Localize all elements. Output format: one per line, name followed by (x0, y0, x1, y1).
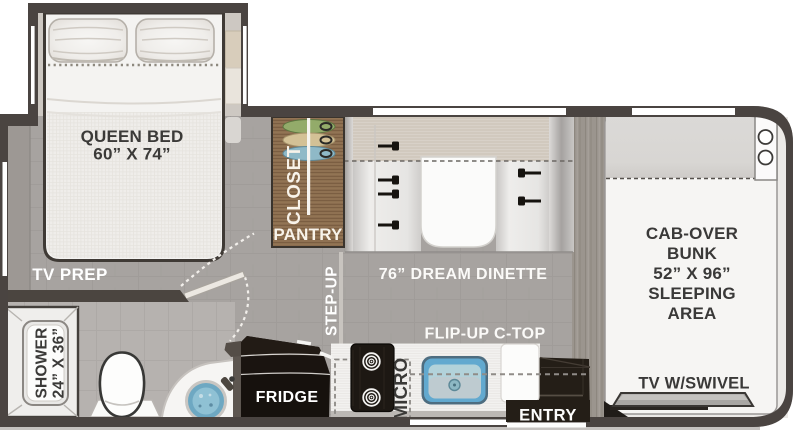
svg-text:MICRO: MICRO (390, 358, 411, 421)
svg-text:76” DREAM DINETTE: 76” DREAM DINETTE (379, 266, 548, 283)
svg-text:FRIDGE: FRIDGE (256, 389, 319, 406)
svg-text:CLOSET: CLOSET (283, 145, 304, 225)
svg-text:52” X 96”: 52” X 96” (653, 264, 730, 283)
svg-text:TV PREP: TV PREP (32, 265, 108, 284)
svg-text:24” X 36”: 24” X 36” (51, 328, 68, 399)
svg-text:FLIP-UP C-TOP: FLIP-UP C-TOP (424, 326, 545, 343)
svg-text:ENTRY: ENTRY (519, 407, 577, 425)
svg-text:60” X 74”: 60” X 74” (93, 145, 170, 164)
svg-text:PANTRY: PANTRY (273, 225, 343, 244)
svg-text:SHOWER: SHOWER (34, 328, 51, 399)
svg-text:QUEEN BED: QUEEN BED (81, 127, 184, 146)
svg-text:STEP-UP: STEP-UP (324, 266, 341, 336)
svg-text:SLEEPING: SLEEPING (648, 284, 736, 303)
svg-text:AREA: AREA (668, 304, 717, 323)
svg-text:TV W/SWIVEL: TV W/SWIVEL (638, 375, 749, 393)
svg-text:BUNK: BUNK (667, 244, 717, 263)
svg-text:CAB-OVER: CAB-OVER (646, 224, 738, 243)
